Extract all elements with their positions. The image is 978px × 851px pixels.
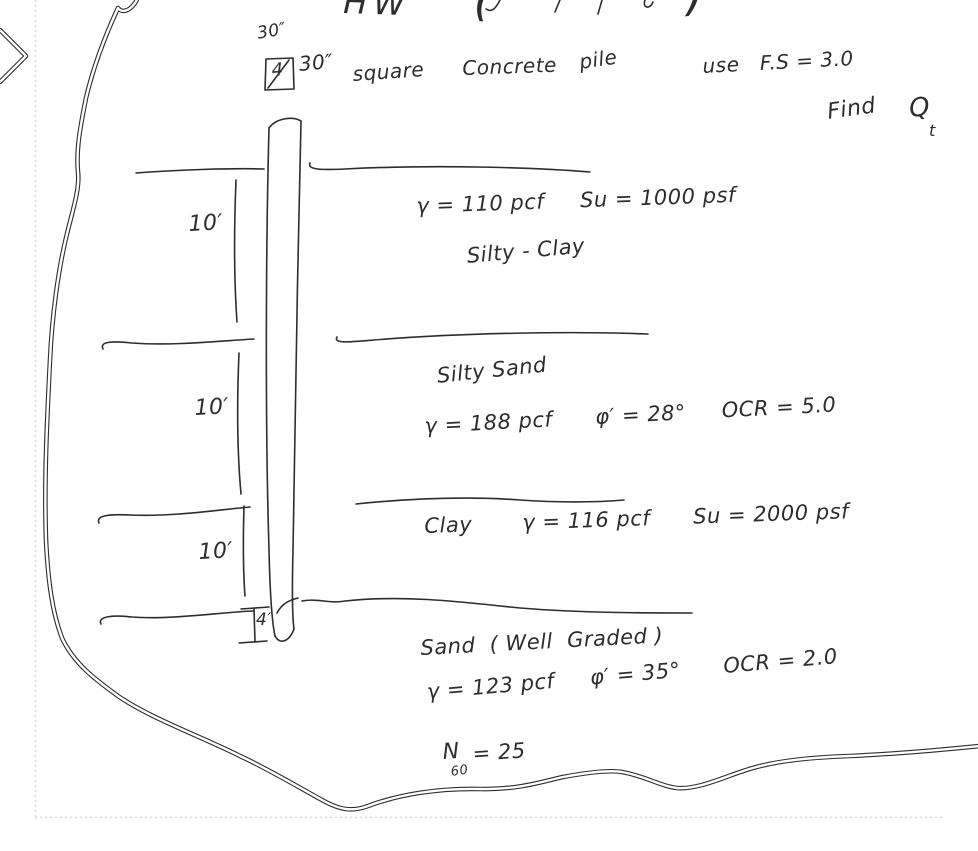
- pile-spec-word-size: 30″: [298, 51, 334, 74]
- pile-top-cap: [269, 118, 301, 128]
- stratum-boundary-2-right: [336, 333, 648, 342]
- spt-n-value: = 25: [472, 740, 526, 765]
- pile-spec-word-material: Concrete: [462, 55, 557, 78]
- pile-width-label: 30″: [256, 21, 288, 43]
- spt-n-subscript: 60: [450, 764, 469, 779]
- find-subscript: t: [929, 123, 936, 139]
- stratum-boundary-2-left: [102, 339, 254, 349]
- sketch-canvas: HW ( ) 30″ 4 30″ square Concrete pile us…: [0, 0, 978, 851]
- pile-left-edge: [266, 128, 275, 636]
- hw-title: HW: [343, 0, 412, 20]
- depth-line-3: [243, 506, 245, 596]
- depth-line-2: [238, 353, 241, 494]
- pile-tip-tick: [277, 598, 298, 613]
- stratum-boundary-3-right: [356, 498, 624, 504]
- depth-label-4: 4′: [256, 612, 272, 629]
- cloud-border-chevron: [0, 30, 26, 82]
- pile-outline: [266, 118, 301, 641]
- stratum-boundary-3-left: [98, 507, 250, 523]
- depth-line-1: [235, 180, 237, 322]
- cut-letter-fragments: [486, 0, 653, 14]
- spt-n-symbol: N: [442, 741, 460, 764]
- pile-spec-word-shape: square: [352, 59, 425, 84]
- stratum-boundary-4-right: [302, 599, 692, 613]
- pile-count-value: 4: [271, 61, 284, 80]
- depth-label-1: 10′: [188, 212, 224, 236]
- ground-line-right: [310, 163, 590, 172]
- find-symbol: Q: [908, 94, 931, 122]
- pile-spec-word-type: pile: [578, 47, 619, 72]
- ground-line-left: [136, 169, 264, 173]
- stratum-boundary-4-left: [100, 611, 254, 624]
- depth-label-2: 10′: [194, 396, 230, 420]
- depth-label-3: 10′: [198, 540, 234, 564]
- pile-right-edge: [292, 121, 301, 629]
- pile-tip: [275, 629, 294, 641]
